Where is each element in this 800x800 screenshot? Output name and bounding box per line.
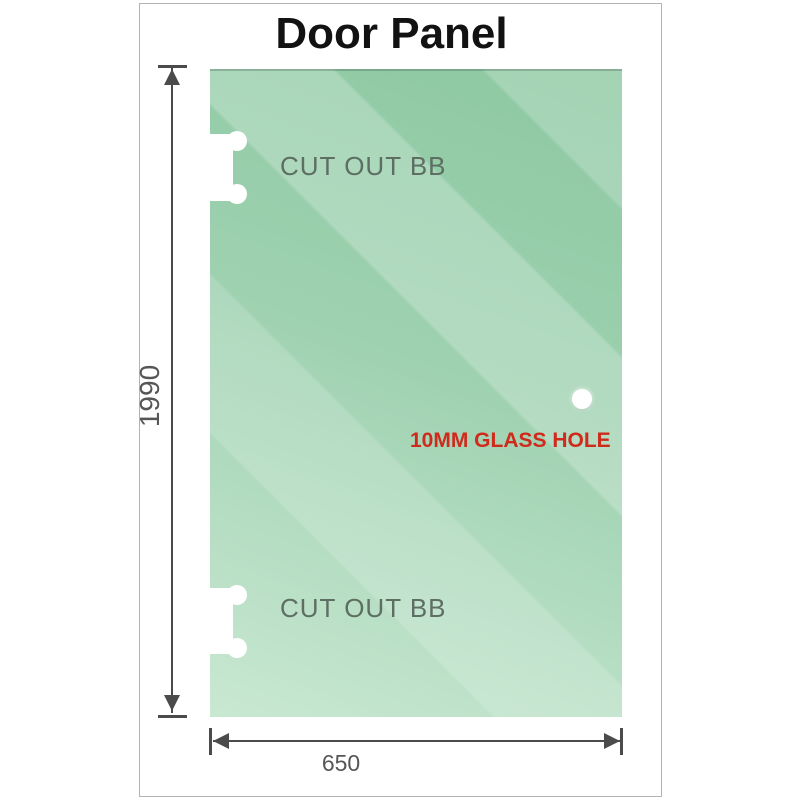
arrow-up-icon xyxy=(164,69,180,85)
width-dimension-tick-right xyxy=(620,728,623,755)
height-dimension-tick-top xyxy=(158,65,187,68)
glass-hole-icon xyxy=(572,389,592,409)
width-dimension-tick-left xyxy=(209,728,212,755)
height-dimension-label: 1990 xyxy=(136,365,164,427)
cutout-bottom-label: CUT OUT BB xyxy=(280,595,447,621)
arrow-right-icon xyxy=(604,733,620,749)
hinge-cutout-bottom xyxy=(209,588,257,660)
cutout-top-label: CUT OUT BB xyxy=(280,153,447,179)
width-dimension-line xyxy=(213,740,620,742)
hinge-cutout-top xyxy=(209,134,257,206)
glass-hole-label: 10MM GLASS HOLE xyxy=(410,430,611,451)
page-title: Door Panel xyxy=(130,10,653,58)
arrow-down-icon xyxy=(164,695,180,711)
height-dimension-tick-bottom xyxy=(158,715,187,718)
arrow-left-icon xyxy=(213,733,229,749)
height-dimension-line xyxy=(171,67,173,713)
cutout-lobe-icon xyxy=(227,638,247,658)
cutout-lobe-icon xyxy=(227,585,247,605)
cutout-lobe-icon xyxy=(227,131,247,151)
width-dimension-label: 650 xyxy=(322,752,360,775)
cutout-lobe-icon xyxy=(227,184,247,204)
